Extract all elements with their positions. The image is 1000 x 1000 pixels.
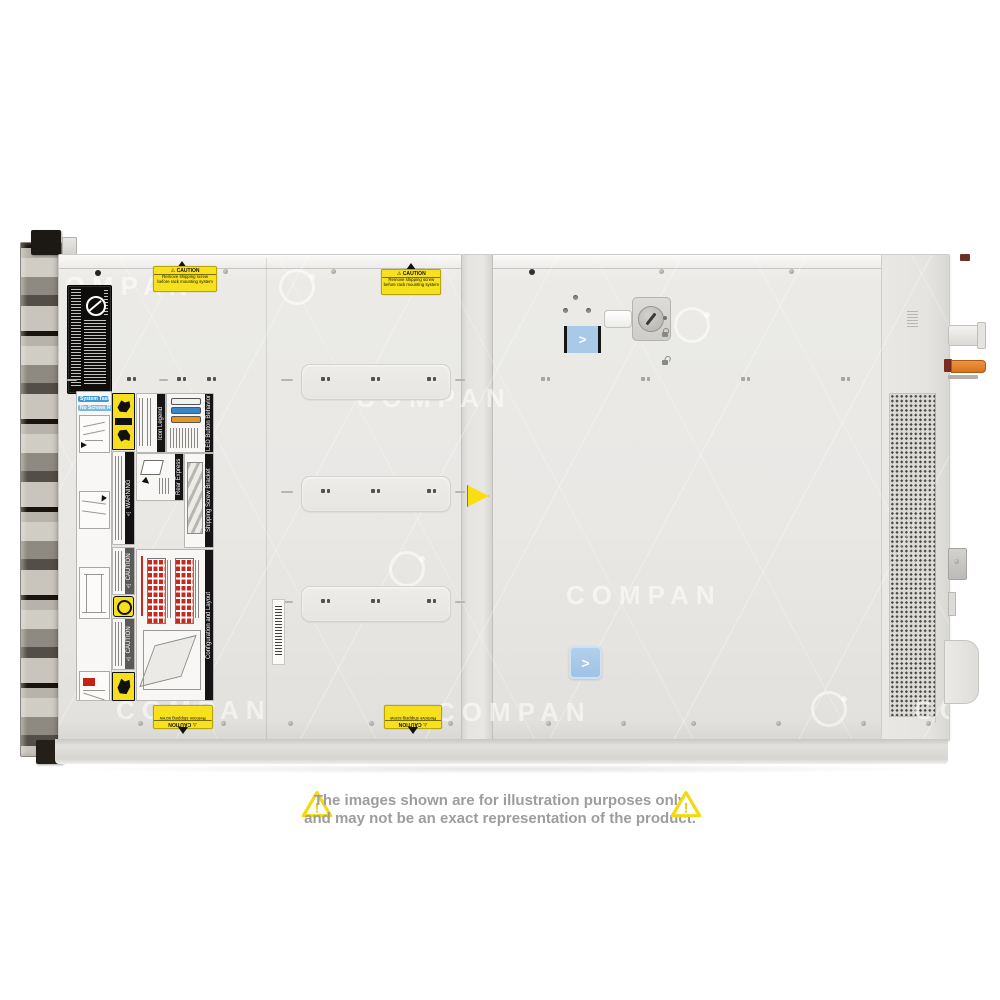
screw [223,269,228,274]
key-slot-icon [646,313,657,326]
rear-print-text [907,311,918,327]
icon-legend-label: Icon Legend [136,393,166,453]
vent-holes [127,377,136,381]
cover-recess [301,476,451,512]
release-button-marker: > [569,646,602,679]
watermark-logo [811,691,847,727]
led-behavior-label: LED Button Behavior [166,393,214,453]
icon-legend-header: Icon Legend [157,394,165,452]
led-bar-blue [171,407,201,414]
disclaimer-line1: The images shown are for illustration pu… [0,792,1000,810]
watermark-logo [674,307,710,343]
vent-holes [177,377,186,381]
caution-title: ⚠ CAUTION [154,267,216,275]
server-front-bezel [20,242,62,757]
psu-release-lever [951,360,986,373]
server-top-cover: COMPAN COMPAN COMPAN COMPAN COMPAN COMPA… [58,254,950,741]
chevron-right-icon: > [581,655,589,671]
rear-seam [935,393,936,723]
disclaimer-line2: and may not be an exact representation o… [0,810,1000,828]
screw-hole [563,308,568,313]
rear-bracket [948,375,978,379]
system-tasks-header: System Tasks [78,396,109,402]
screw [95,270,101,276]
vent-dash [159,379,168,381]
vent-dash [67,379,77,381]
caution-line: Remove shipping screw [154,715,212,720]
pointer-down-icon [178,727,188,734]
caution-sticker: ⚠ CAUTION Remove shipping screw before r… [381,269,441,295]
screw [331,269,336,274]
caution-sticker: ⚠ CAUTION Remove shipping screw [153,705,213,729]
caution-small-label: ⚠ CAUTION [112,547,135,595]
shipping-bracket-header: Shipping Screw Bracket [205,454,213,547]
drive-bay-grid [147,558,166,624]
lock-dot-icon [663,316,667,320]
service-label-panel: System Tasks No Screws Required! [76,391,212,701]
regulatory-label [67,285,112,394]
configuration-layout-label: Configuration and Layout [136,549,214,701]
watermark-text: COMPAN [566,580,722,611]
vent-holes [207,377,216,381]
pinch-warning-label [112,672,135,701]
lock-open-icon [662,360,668,365]
keylock-cylinder [638,306,664,332]
timer-icon-label [113,596,134,617]
cover-seam [266,258,267,740]
caution-sticker: ⚠ CAUTION Remove shipping screw [384,705,442,729]
caution-small-label: ⚠ CAUTION [112,618,135,670]
caution-line: before rack mounting system [154,280,216,285]
screw-hole [573,295,578,300]
drop-shadow [70,764,940,774]
cover-keylock [632,297,671,341]
rear-tab [948,592,956,616]
system-tasks-label: System Tasks No Screws Required! [76,391,112,701]
watermark-logo [279,269,315,305]
screw [659,269,664,274]
shipping-bracket-label: Shipping Screw Bracket [184,453,214,548]
caution-header: ⚠ CAUTION [125,548,134,594]
chevron-right-icon: > [579,332,587,347]
lock-closed-icon [662,332,668,337]
rear-vent-grid [889,393,936,717]
rear-latch [948,548,967,580]
watermark-logo [389,551,425,587]
screw [529,269,535,275]
rear-service-tag-label: Rear Express Service Tag [136,453,184,501]
product-photo: COMPAN COMPAN COMPAN COMPAN COMPAN COMPA… [0,0,1000,1000]
cover-recess [301,364,451,400]
no-screws-header: No Screws Required! [78,405,112,411]
caution-sticker: ⚠ CAUTION Remove shipping screw before r… [153,266,217,292]
watermark-text: COMPAN [436,697,592,728]
disclaimer-text: The images shown are for illustration pu… [0,792,1000,828]
cover-recess [301,586,451,622]
screw-hole [586,308,591,313]
no-disassembly-icon [86,296,106,316]
caution-line: Remove shipping screw [385,715,441,720]
rear-handle-cap [977,322,986,349]
release-direction-label: > [564,326,601,353]
barcode-sticker [272,599,285,665]
exclamation-mark: ! [684,801,689,816]
pinch-warning-label [112,393,135,450]
cover-release-slide [604,310,632,328]
pointer-down-icon [408,727,418,734]
chassis-base-edge [55,739,948,764]
screw [789,269,794,274]
warning-label: ⚠ WARNING [112,451,135,545]
rear-pin [960,254,970,261]
caution-title: ⚠ CAUTION [382,270,440,278]
led-behavior-header: LED Button Behavior [205,394,213,452]
rack-ear-top [31,230,61,255]
led-bar-white [171,398,201,405]
rear-foot [944,640,979,704]
drive-bay-grid [175,558,194,624]
configuration-layout-header: Configuration and Layout [205,550,213,700]
caution-line: before rack mounting system [382,283,440,288]
rear-service-tag-header: Rear Express Service Tag [175,454,183,500]
warning-triangle-icon: ! [670,790,702,819]
led-bar-orange [171,416,201,423]
caution-header: ⚠ CAUTION [125,619,134,669]
warning-header: ⚠ WARNING [125,452,134,544]
